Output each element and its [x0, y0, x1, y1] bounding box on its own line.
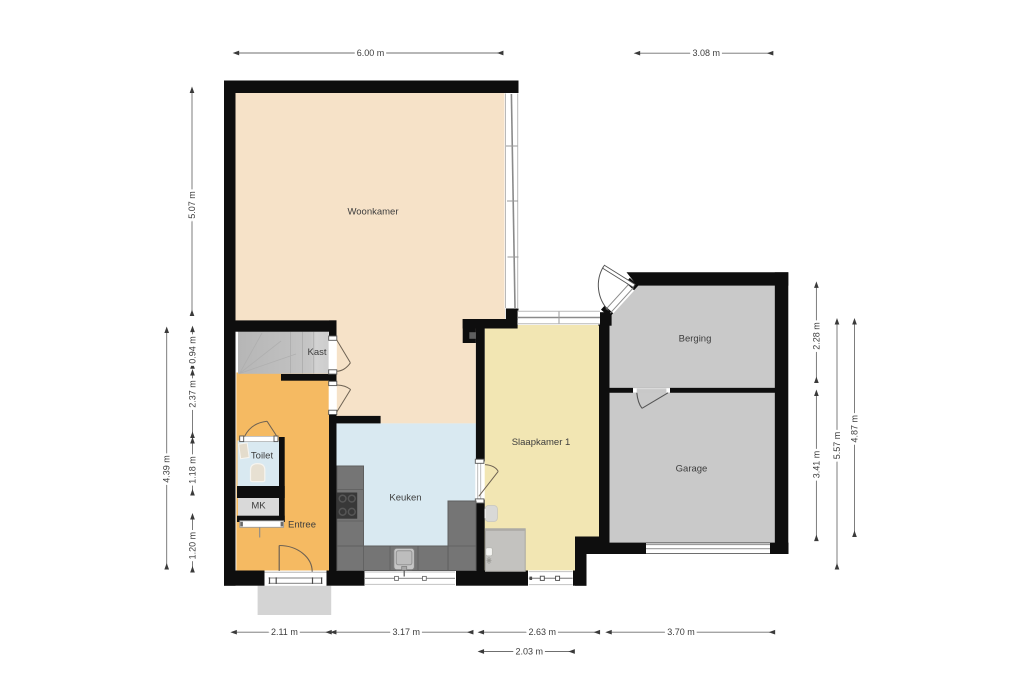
- svg-text:MK: MK: [251, 501, 266, 512]
- svg-text:2.11 m: 2.11 m: [271, 627, 298, 637]
- svg-text:4.87 m: 4.87 m: [850, 415, 860, 443]
- svg-text:Kast: Kast: [307, 347, 326, 358]
- svg-text:Garage: Garage: [676, 463, 708, 474]
- svg-text:1.20 m: 1.20 m: [188, 532, 198, 560]
- svg-text:5.07 m: 5.07 m: [187, 191, 197, 219]
- svg-text:Entree: Entree: [288, 519, 316, 530]
- svg-text:0.94 m: 0.94 m: [188, 336, 198, 364]
- svg-text:Berging: Berging: [679, 333, 712, 344]
- svg-text:1.18 m: 1.18 m: [188, 456, 198, 484]
- svg-text:Toilet: Toilet: [251, 450, 274, 461]
- svg-text:3.17 m: 3.17 m: [393, 627, 421, 637]
- svg-text:Slaapkamer 1: Slaapkamer 1: [512, 437, 571, 448]
- svg-text:6.00 m: 6.00 m: [357, 48, 385, 58]
- svg-text:3.70 m: 3.70 m: [667, 627, 695, 637]
- svg-text:3.08 m: 3.08 m: [693, 48, 721, 58]
- svg-text:3.41 m: 3.41 m: [811, 451, 821, 479]
- svg-text:Keuken: Keuken: [389, 493, 421, 504]
- svg-text:2.03 m: 2.03 m: [516, 647, 544, 657]
- svg-text:2.28 m: 2.28 m: [811, 322, 821, 350]
- svg-text:4.39 m: 4.39 m: [162, 455, 172, 483]
- svg-text:2.63 m: 2.63 m: [528, 627, 556, 637]
- svg-text:Woonkamer: Woonkamer: [347, 207, 398, 218]
- svg-text:5.57 m: 5.57 m: [832, 432, 842, 460]
- svg-text:2.37 m: 2.37 m: [188, 380, 198, 408]
